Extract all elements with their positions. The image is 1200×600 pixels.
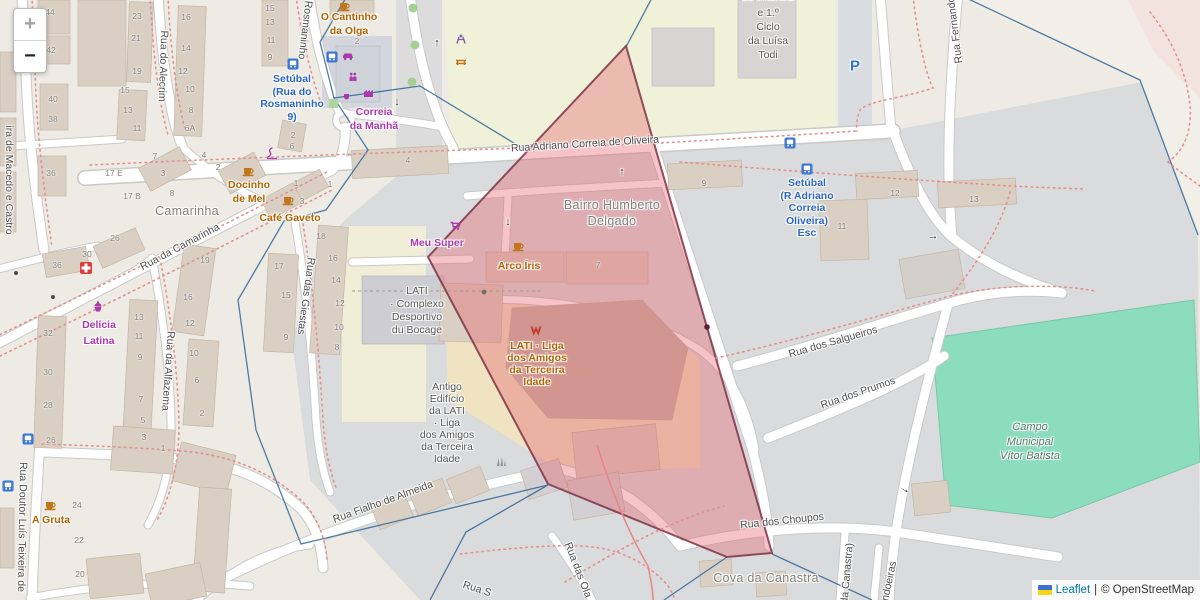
bakery-icon (95, 302, 102, 312)
boundary-node-dot (704, 324, 710, 330)
bus-stop-icon (327, 52, 338, 63)
crossing-icon (14, 271, 18, 275)
bus-stop-icon (802, 164, 813, 175)
zoom-in-button[interactable]: + (14, 9, 46, 41)
zoom-control: + − (13, 8, 47, 73)
bus-stop-icon (23, 434, 34, 445)
pharmacy-icon (80, 262, 92, 274)
bus-stop-icon (785, 138, 796, 149)
ukraine-flag-icon (1038, 585, 1052, 595)
attribution-separator: | (1094, 584, 1097, 596)
map-canvas[interactable] (0, 0, 1200, 600)
leaflet-map[interactable]: Rua do Alecrim ira de Macedo e Castro Ro… (0, 0, 1200, 600)
osm-attribution: © OpenStreetMap (1101, 584, 1194, 596)
bus-stop-icon (3, 481, 14, 492)
cafe-icon (45, 502, 56, 510)
attribution-bar: Leaflet | © OpenStreetMap (1032, 580, 1200, 600)
cafe-small-icon (344, 94, 349, 100)
bus-stop-icon (288, 59, 299, 70)
crossing-icon (51, 295, 55, 299)
leaflet-link[interactable]: Leaflet (1056, 584, 1091, 596)
zoom-out-button[interactable]: − (14, 41, 46, 72)
